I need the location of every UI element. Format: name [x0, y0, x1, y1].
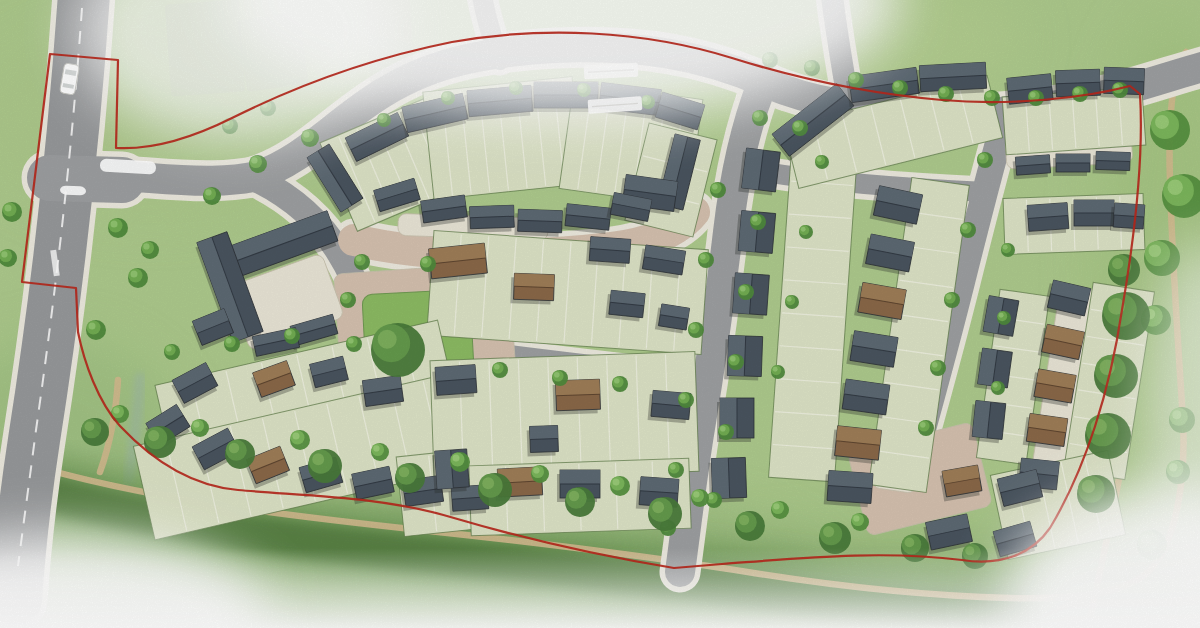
- site-plan-illustration: [0, 0, 1200, 628]
- masterplan-canvas: [0, 0, 1200, 628]
- grain-texture: [0, 0, 1200, 628]
- plan-late-layers: [0, 0, 1200, 628]
